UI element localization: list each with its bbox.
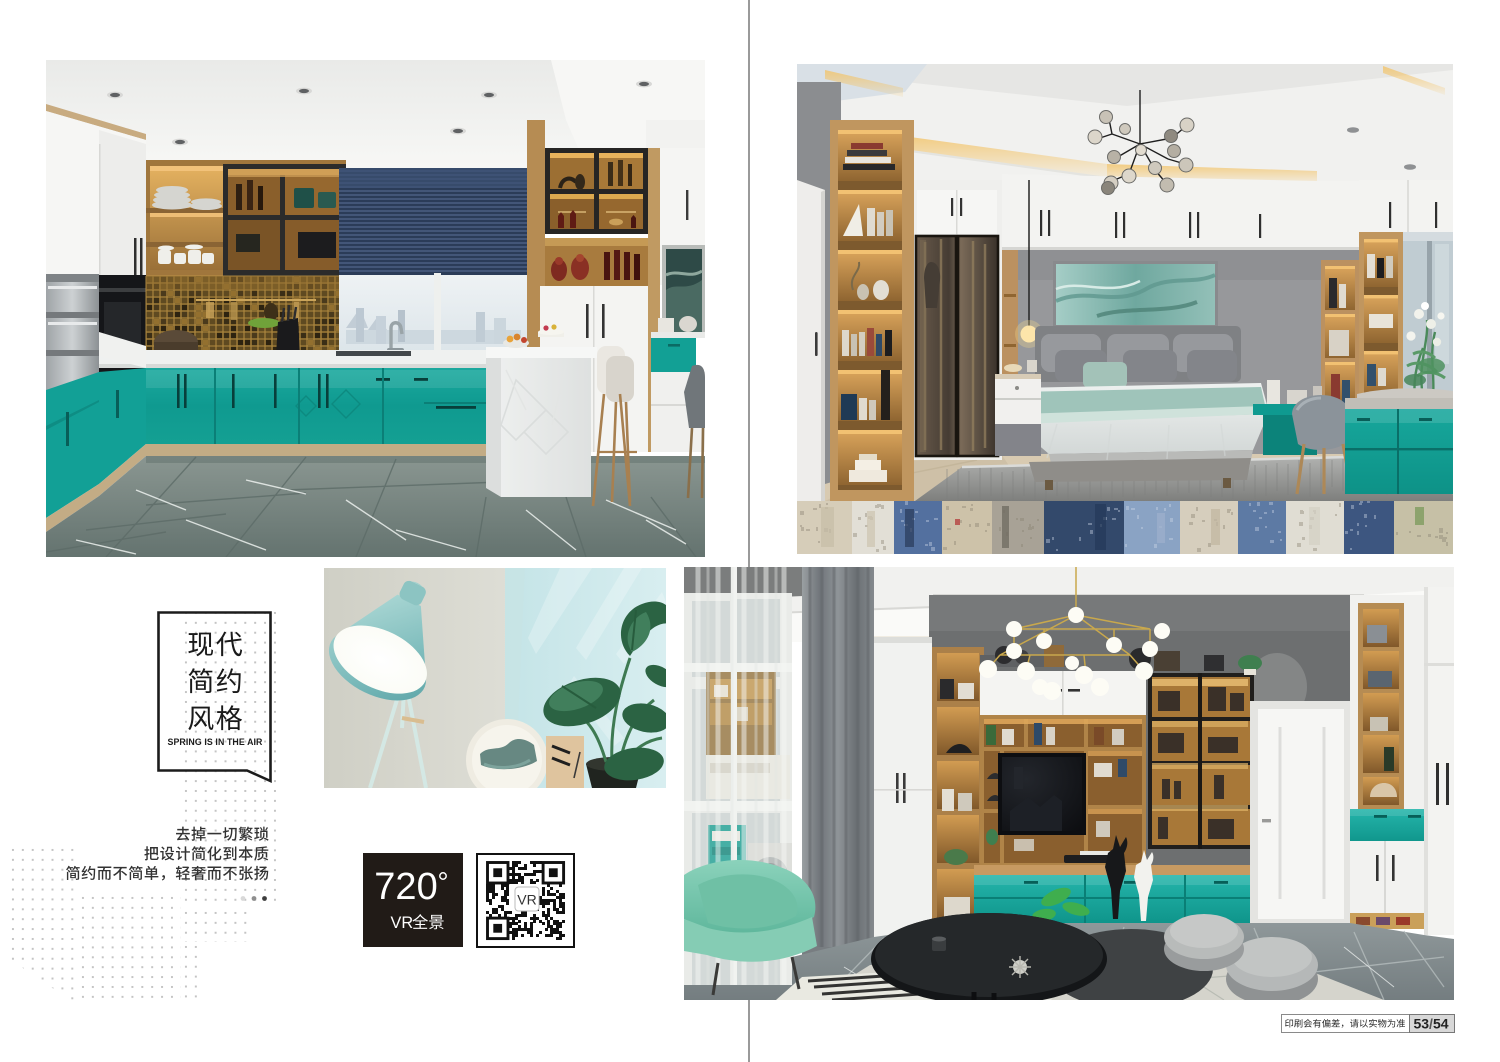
svg-text:720: 720 [374,866,437,908]
svg-text:53/54: 53/54 [1413,1016,1448,1032]
svg-text:VR: VR [391,914,414,932]
svg-text:VR: VR [517,892,536,908]
svg-text:SPRING IS IN THE AIR: SPRING IS IN THE AIR [167,737,263,747]
